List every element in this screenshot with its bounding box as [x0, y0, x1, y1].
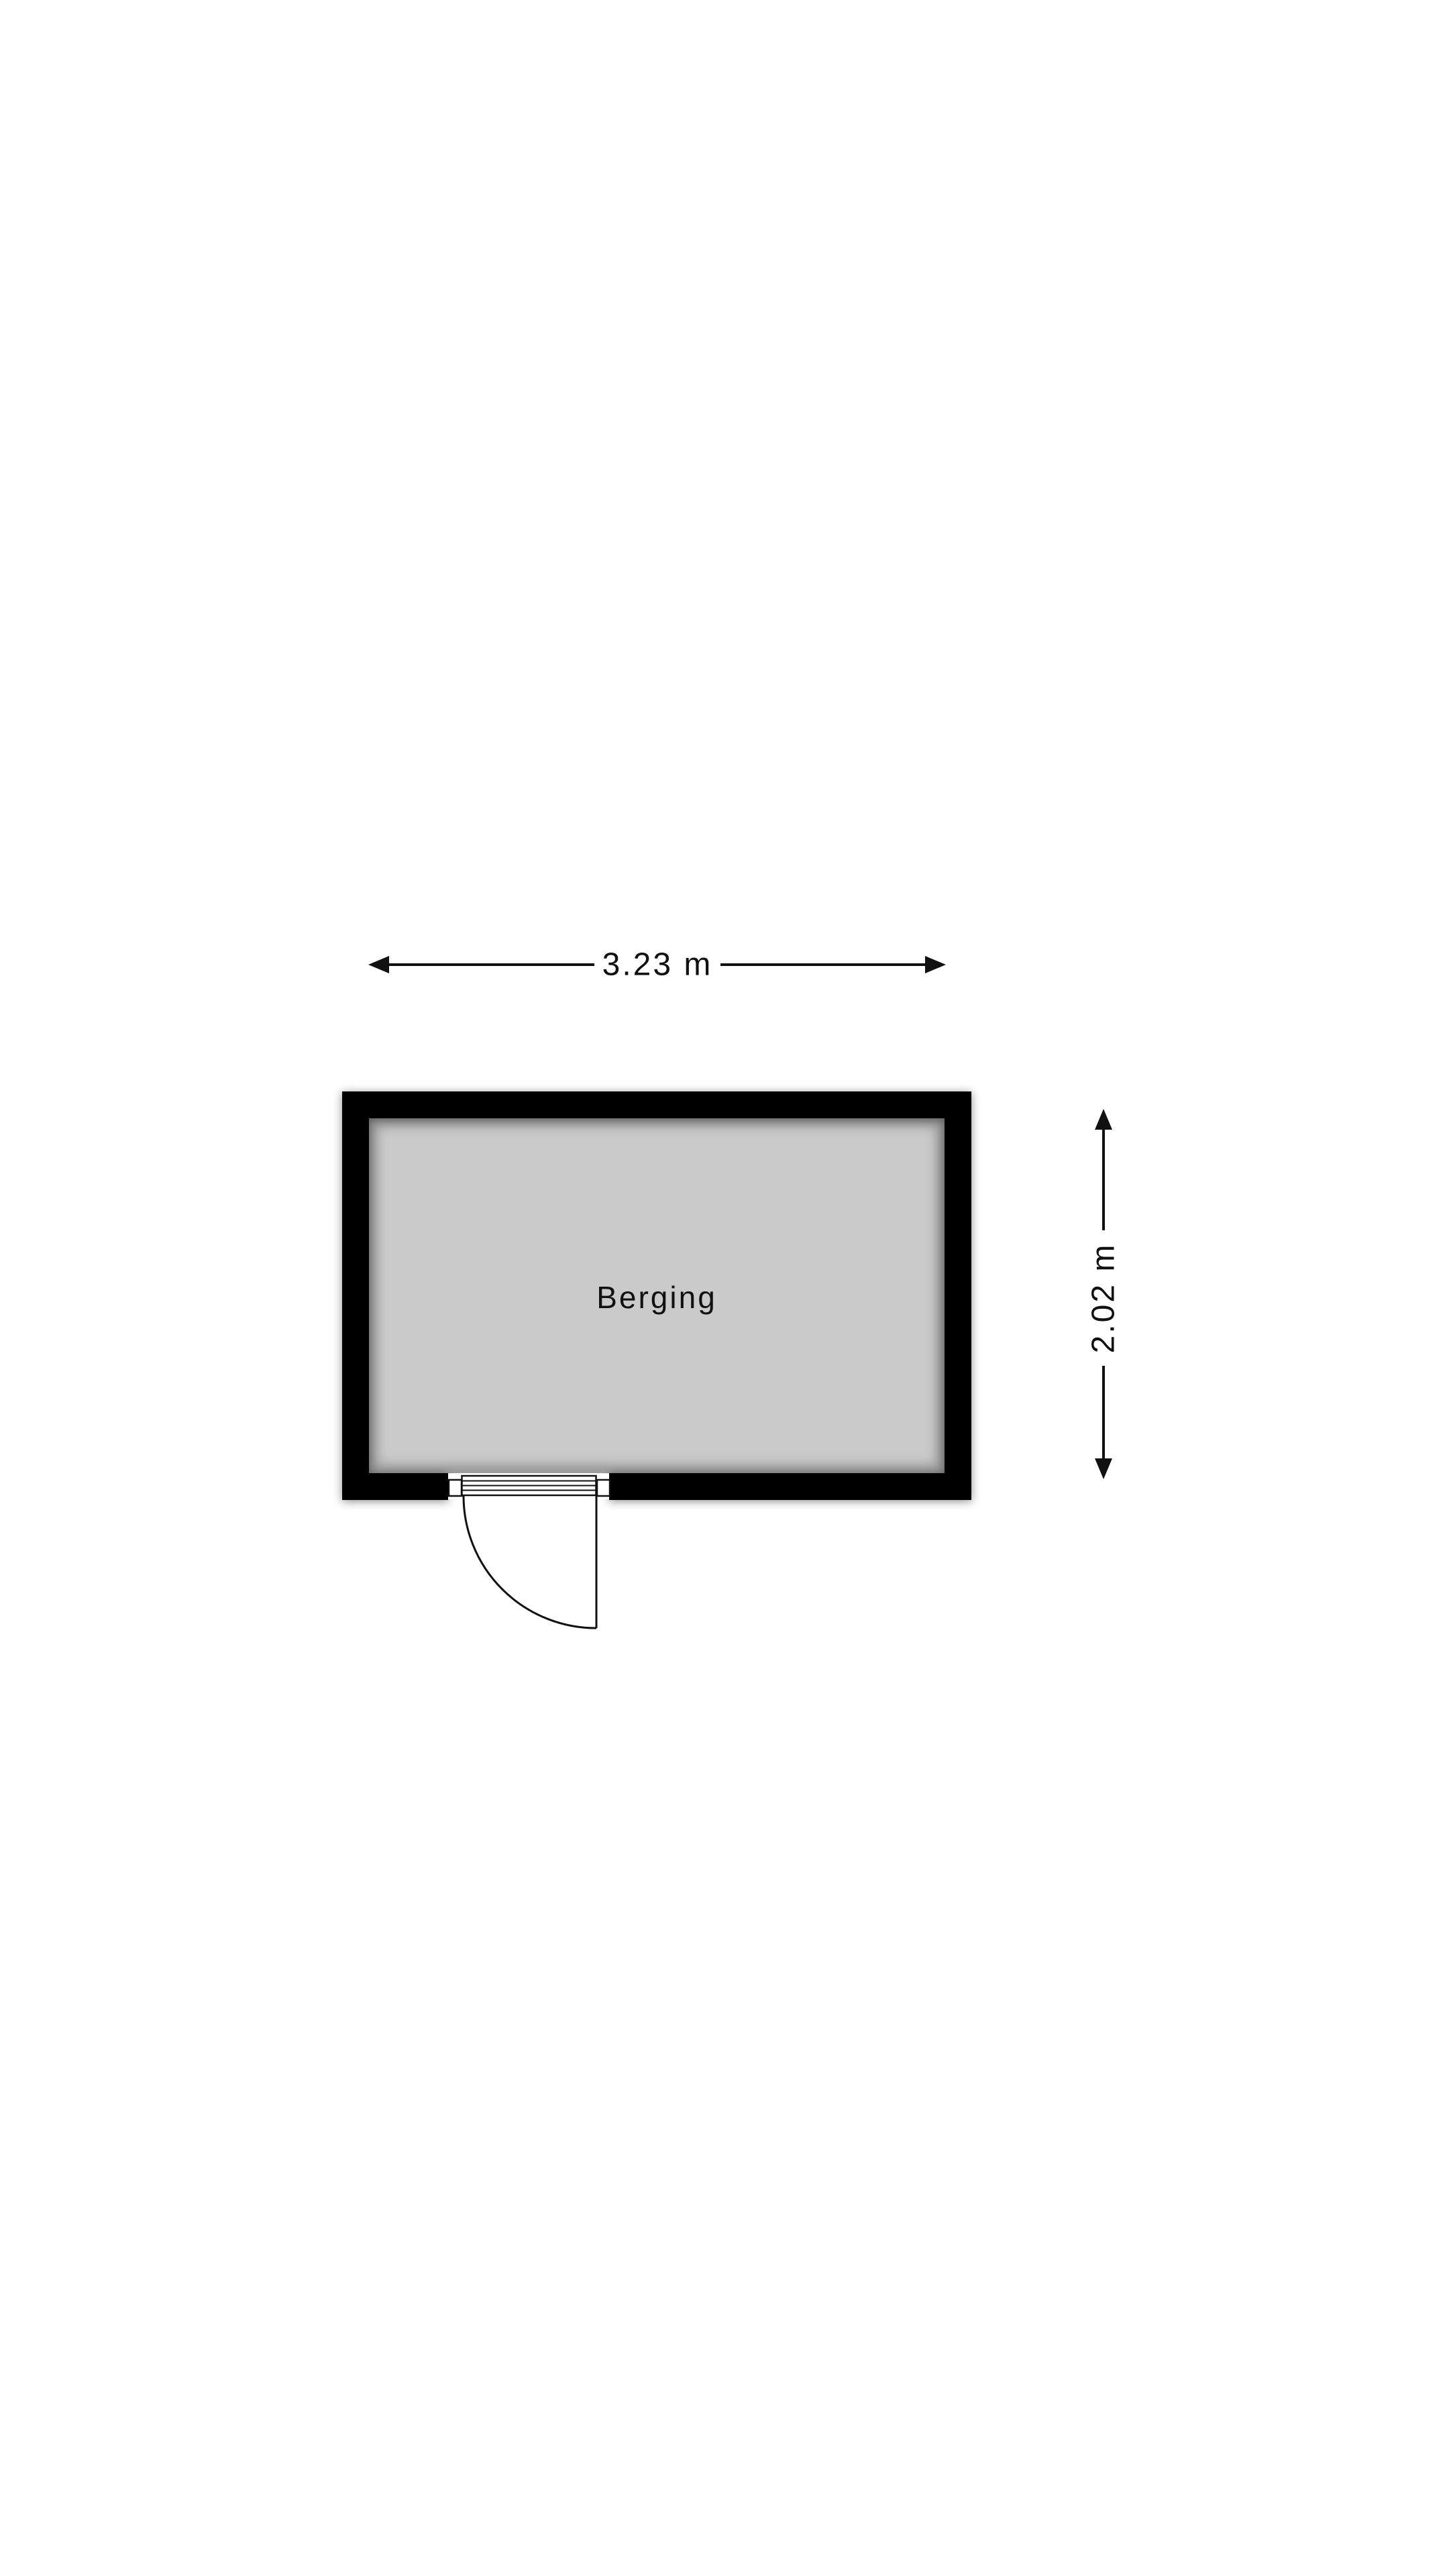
height-dimension: 2.02 m	[1086, 1109, 1122, 1479]
floorplan-page: 3.23 m Berging	[0, 0, 1449, 2576]
width-dimension-label: 3.23 m	[602, 947, 713, 983]
door-swing-arc	[464, 1496, 596, 1628]
height-dimension-label: 2.02 m	[1086, 1243, 1122, 1354]
door-jamb-left	[449, 1480, 462, 1496]
door-jamb-right	[597, 1480, 610, 1496]
arrow-right-icon	[925, 956, 946, 973]
arrow-down-icon	[1095, 1458, 1112, 1479]
arrow-up-icon	[1095, 1109, 1112, 1130]
arrow-left-icon	[368, 956, 389, 973]
width-dimension: 3.23 m	[368, 947, 946, 983]
door	[448, 1474, 610, 1628]
room-label: Berging	[596, 1280, 717, 1315]
floor-plan: 3.23 m Berging	[0, 0, 1449, 2576]
room-berging: Berging	[342, 1091, 971, 1500]
